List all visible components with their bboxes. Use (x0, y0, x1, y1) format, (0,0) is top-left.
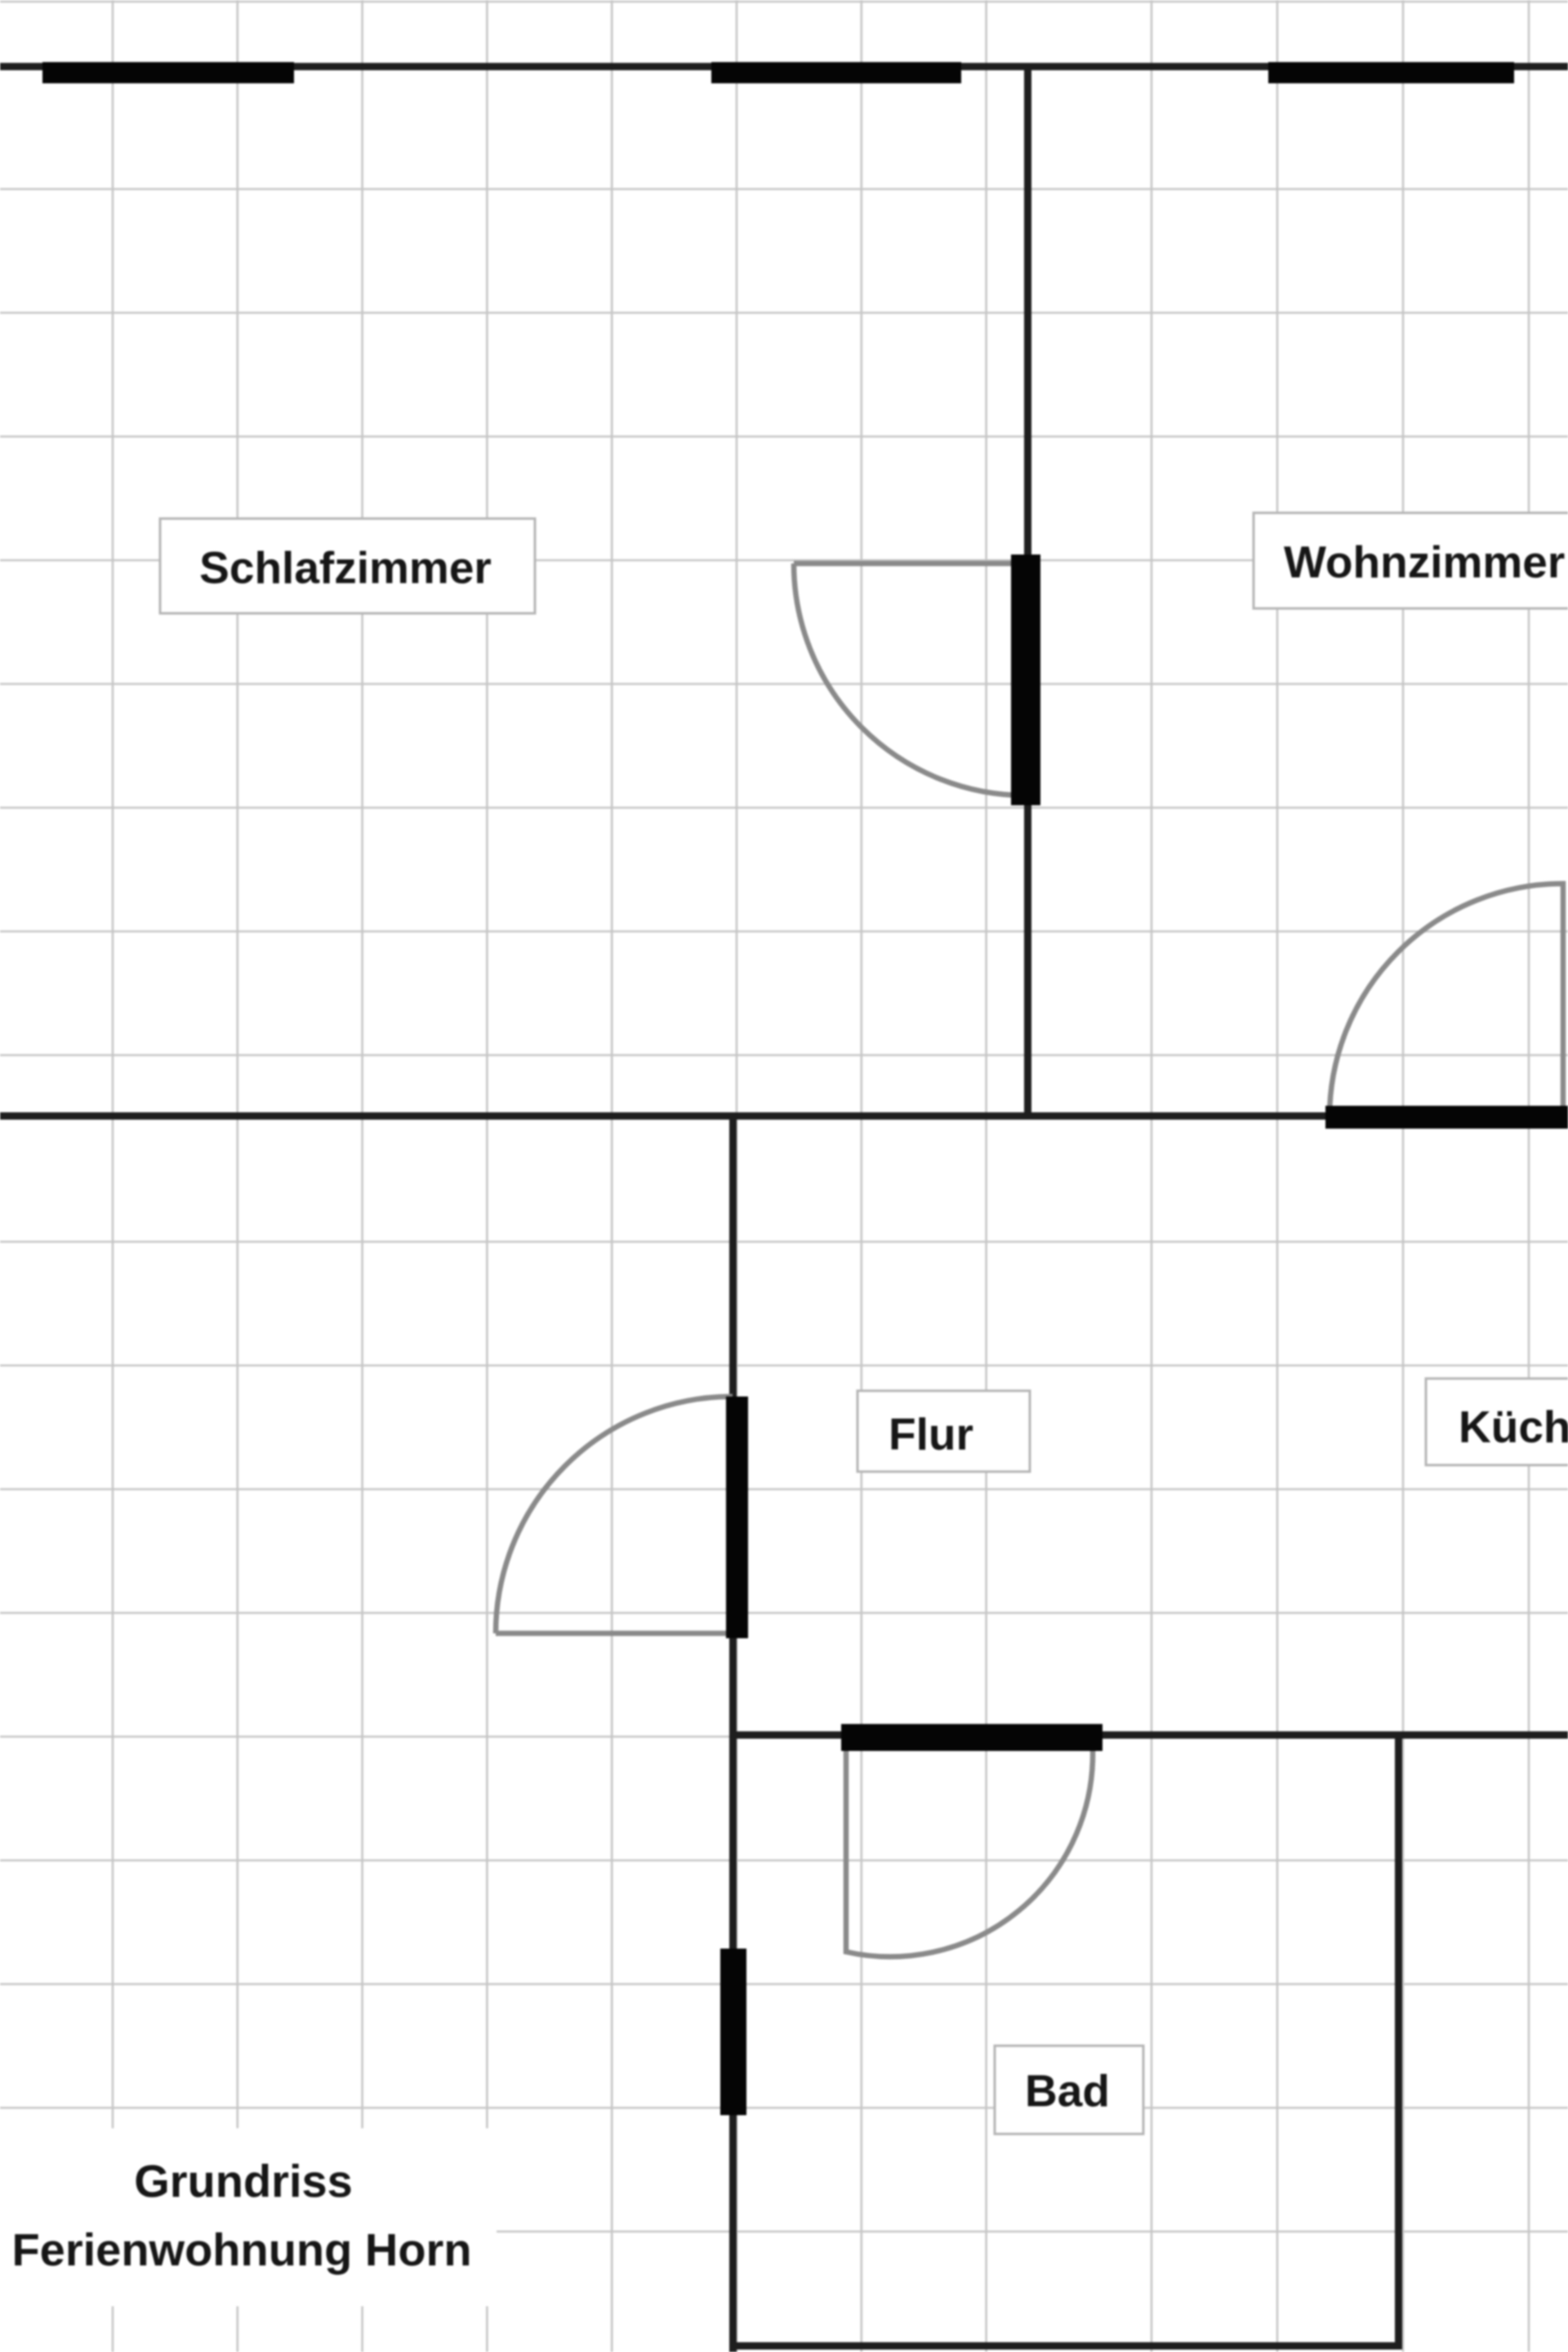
svg-text:Flur: Flur (889, 1409, 973, 1459)
svg-text:Wohnzimmer: Wohnzimmer (1284, 537, 1565, 587)
svg-text:Ferienwohnung Horn: Ferienwohnung Horn (11, 2224, 471, 2275)
svg-text:Schlafzimmer: Schlafzimmer (199, 542, 492, 593)
svg-text:Küche: Küche (1459, 1401, 1568, 1452)
svg-text:Bad: Bad (1025, 2065, 1110, 2116)
svg-text:Grundriss: Grundriss (134, 2155, 353, 2207)
